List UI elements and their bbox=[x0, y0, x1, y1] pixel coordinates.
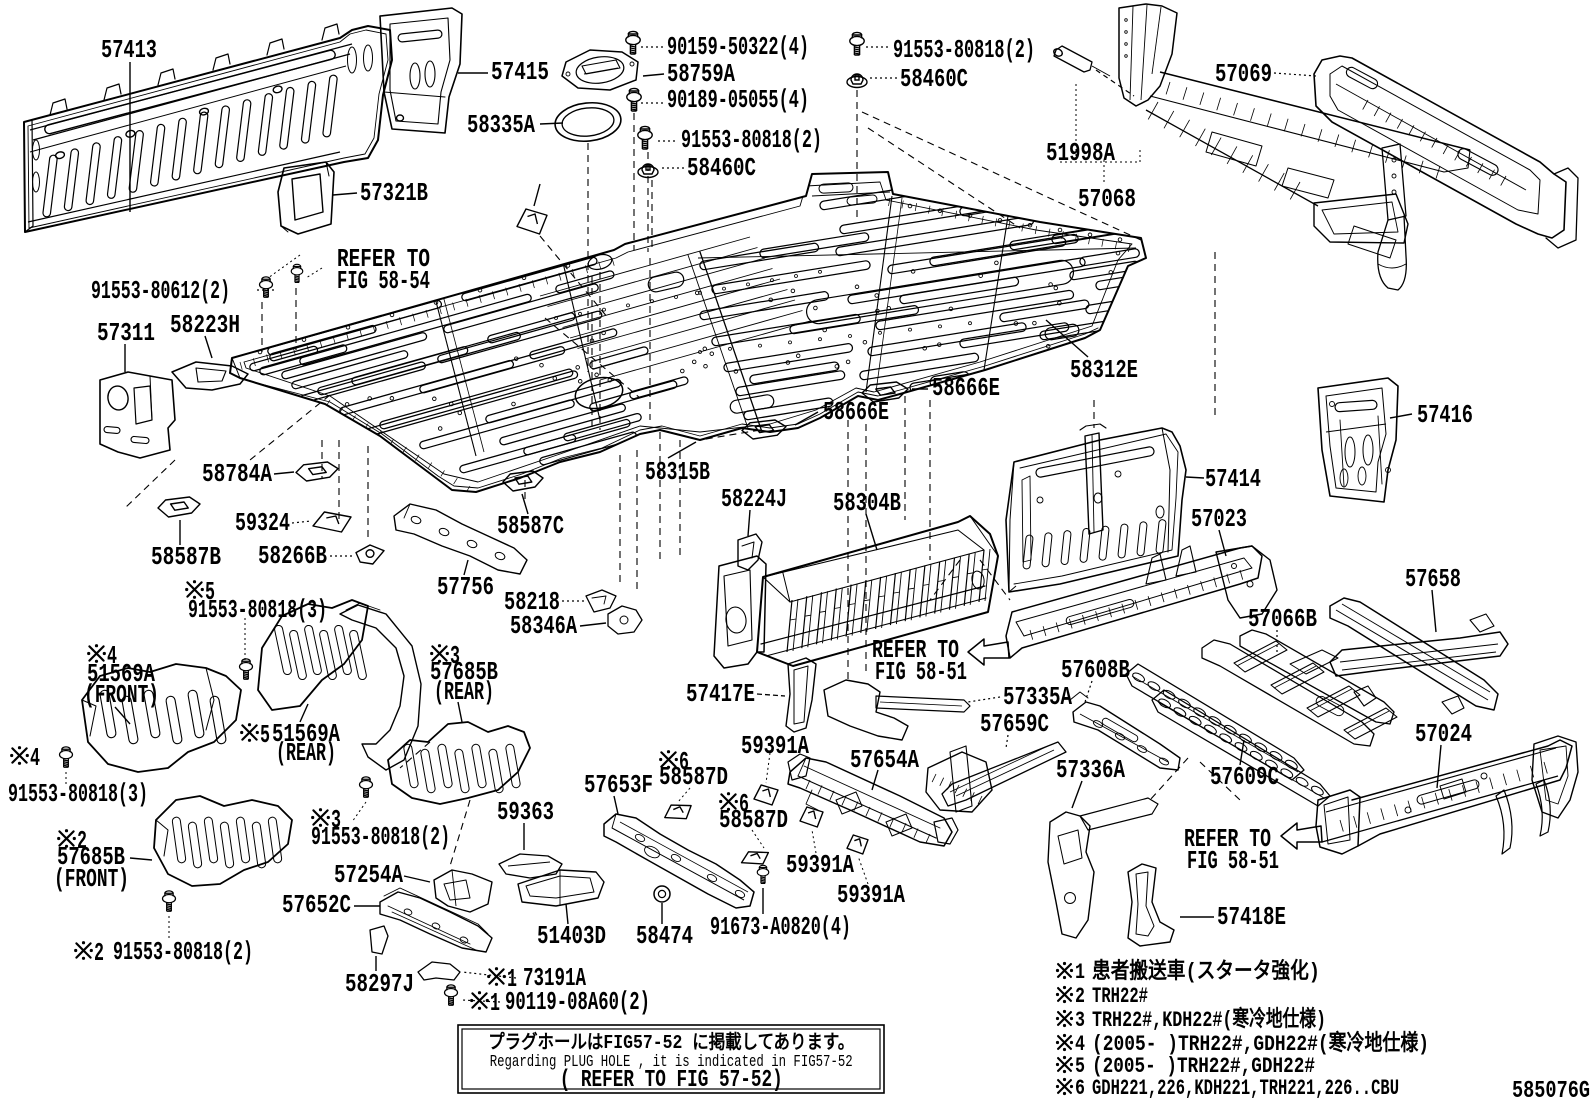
svg-text:57335A: 57335A bbox=[1003, 682, 1072, 712]
svg-text:57068: 57068 bbox=[1078, 184, 1136, 214]
svg-text:59363: 59363 bbox=[497, 797, 554, 827]
svg-text:58587C: 58587C bbox=[497, 511, 564, 541]
svg-text:2: 2 bbox=[94, 938, 104, 968]
svg-text:91553-80818(2): 91553-80818(2) bbox=[681, 125, 822, 155]
svg-text:1: 1 bbox=[490, 988, 500, 1018]
svg-text:(2005- )TRH22#,GDH22#(寒冷地仕様: (2005- )TRH22#,GDH22#(寒冷地仕様) bbox=[1092, 1030, 1429, 1057]
svg-text:2: 2 bbox=[1075, 984, 1085, 1009]
svg-text:57415: 57415 bbox=[491, 57, 549, 87]
svg-text:58224J: 58224J bbox=[721, 484, 787, 514]
svg-text:57418E: 57418E bbox=[1217, 902, 1286, 932]
svg-text:51998A: 51998A bbox=[1046, 138, 1115, 168]
svg-text:58312E: 58312E bbox=[1070, 355, 1138, 385]
svg-text:585076G: 585076G bbox=[1512, 1078, 1590, 1099]
svg-text:プラグホールはFIG57-52 に掲載してあります。: プラグホールはFIG57-52 に掲載してあります。 bbox=[488, 1030, 854, 1054]
svg-text:57417E: 57417E bbox=[686, 679, 755, 709]
svg-text:57653F: 57653F bbox=[584, 770, 653, 800]
svg-text:91553-80818(2): 91553-80818(2) bbox=[113, 937, 253, 967]
svg-text:59391A: 59391A bbox=[786, 850, 854, 880]
svg-text:57609C: 57609C bbox=[1210, 762, 1279, 792]
svg-text:58460C: 58460C bbox=[900, 64, 968, 94]
svg-text:57023: 57023 bbox=[1191, 504, 1247, 534]
svg-text:患者搬送車(スタータ強化): 患者搬送車(スタータ強化) bbox=[1092, 958, 1320, 985]
svg-text:57414: 57414 bbox=[1205, 464, 1261, 494]
svg-text:( REFER TO FIG 57-52): ( REFER TO FIG 57-52) bbox=[560, 1067, 783, 1094]
svg-text:58474: 58474 bbox=[636, 921, 693, 951]
svg-text:58587D: 58587D bbox=[659, 762, 728, 792]
svg-text:58335A: 58335A bbox=[467, 110, 535, 140]
svg-text:6: 6 bbox=[1075, 1076, 1085, 1099]
svg-text:TRH22#: TRH22# bbox=[1092, 984, 1148, 1009]
svg-text:90119-08A60(2): 90119-08A60(2) bbox=[505, 987, 650, 1017]
svg-text:58223H: 58223H bbox=[170, 310, 240, 340]
svg-text:(FRONT): (FRONT) bbox=[84, 680, 159, 710]
svg-text:58304B: 58304B bbox=[833, 488, 901, 518]
svg-text:GDH221,226,KDH221,TRH221,226..: GDH221,226,KDH221,TRH221,226..CBU bbox=[1092, 1076, 1399, 1099]
svg-text:58587B: 58587B bbox=[151, 542, 221, 572]
svg-text:58346A: 58346A bbox=[510, 611, 577, 641]
svg-text:FIG 58-54: FIG 58-54 bbox=[337, 266, 430, 296]
svg-text:TRH22#,KDH22#(寒冷地仕様): TRH22#,KDH22#(寒冷地仕様) bbox=[1092, 1006, 1326, 1033]
svg-text:91553-80818(2): 91553-80818(2) bbox=[311, 822, 450, 852]
svg-text:(REAR): (REAR) bbox=[276, 738, 336, 768]
svg-text:57756: 57756 bbox=[437, 572, 494, 602]
svg-text:57311: 57311 bbox=[97, 318, 155, 348]
svg-text:1: 1 bbox=[1075, 960, 1085, 985]
svg-text:57658: 57658 bbox=[1405, 564, 1461, 594]
svg-text:58460C: 58460C bbox=[687, 153, 756, 183]
svg-text:91553-80818(2): 91553-80818(2) bbox=[893, 35, 1035, 65]
svg-text:57608B: 57608B bbox=[1061, 655, 1130, 685]
svg-text:57659C: 57659C bbox=[980, 709, 1049, 739]
svg-text:5: 5 bbox=[260, 720, 270, 750]
svg-text:3: 3 bbox=[1075, 1008, 1085, 1033]
svg-text:58315B: 58315B bbox=[645, 457, 710, 487]
svg-text:91553-80818(3): 91553-80818(3) bbox=[8, 779, 148, 809]
svg-text:57336A: 57336A bbox=[1056, 755, 1125, 785]
svg-text:(REAR): (REAR) bbox=[434, 677, 494, 707]
svg-text:FIG 58-51: FIG 58-51 bbox=[875, 657, 967, 687]
svg-text:4: 4 bbox=[30, 743, 40, 773]
svg-text:58666E: 58666E bbox=[823, 397, 889, 427]
svg-text:57416: 57416 bbox=[1417, 400, 1473, 430]
svg-text:59324: 59324 bbox=[235, 508, 290, 538]
svg-text:57413: 57413 bbox=[101, 35, 157, 65]
svg-text:58266B: 58266B bbox=[258, 541, 327, 571]
svg-text:57024: 57024 bbox=[1415, 719, 1472, 749]
svg-text:57321B: 57321B bbox=[360, 178, 428, 208]
svg-text:58587D: 58587D bbox=[719, 805, 788, 835]
svg-text:59391A: 59391A bbox=[837, 880, 905, 910]
svg-text:90189-05055(4): 90189-05055(4) bbox=[667, 85, 809, 115]
svg-text:59391A: 59391A bbox=[741, 731, 809, 761]
svg-text:FIG 58-51: FIG 58-51 bbox=[1187, 846, 1279, 876]
svg-text:57652C: 57652C bbox=[282, 890, 351, 920]
svg-text:58297J: 58297J bbox=[345, 969, 414, 999]
svg-text:91553-80612(2): 91553-80612(2) bbox=[91, 276, 230, 306]
svg-text:58784A: 58784A bbox=[202, 459, 272, 489]
svg-text:91673-A0820(4): 91673-A0820(4) bbox=[710, 912, 851, 942]
svg-text:(FRONT): (FRONT) bbox=[54, 864, 129, 894]
svg-text:57069: 57069 bbox=[1215, 59, 1272, 89]
svg-text:90159-50322(4): 90159-50322(4) bbox=[667, 32, 809, 62]
svg-text:58666E: 58666E bbox=[932, 373, 1000, 403]
svg-text:57654A: 57654A bbox=[850, 745, 919, 775]
svg-text:57066B: 57066B bbox=[1248, 604, 1317, 634]
svg-text:91553-80818(3): 91553-80818(3) bbox=[188, 595, 327, 625]
svg-text:57254A: 57254A bbox=[334, 860, 403, 890]
svg-text:51403D: 51403D bbox=[537, 921, 606, 951]
